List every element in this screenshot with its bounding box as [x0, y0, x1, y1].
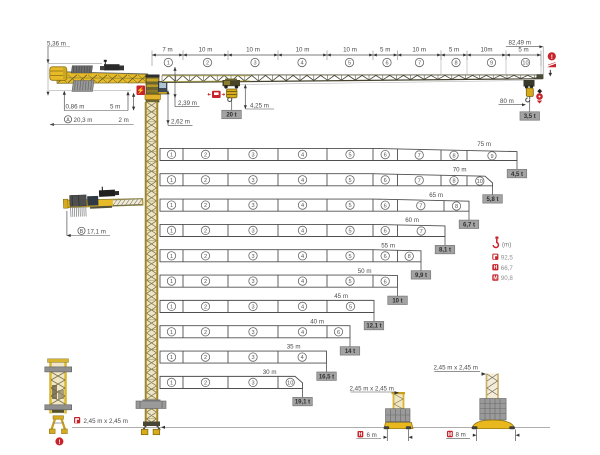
svg-text:3: 3 — [251, 229, 254, 235]
svg-text:3: 3 — [251, 254, 254, 260]
svg-text:5: 5 — [348, 203, 351, 209]
svg-text:6,7 t: 6,7 t — [463, 222, 475, 228]
svg-text:!: ! — [551, 54, 553, 61]
svg-text:6 m: 6 m — [367, 432, 377, 439]
svg-text:3: 3 — [251, 380, 254, 386]
svg-text:5: 5 — [348, 254, 351, 260]
svg-text:4: 4 — [301, 203, 304, 209]
svg-text:8,1 t: 8,1 t — [439, 248, 451, 254]
svg-text:10 m: 10 m — [343, 47, 357, 54]
svg-text:5: 5 — [348, 229, 351, 235]
svg-text:2: 2 — [204, 254, 207, 260]
svg-text:10: 10 — [522, 61, 528, 67]
svg-text:82,49 m: 82,49 m — [509, 39, 531, 46]
svg-text:1: 1 — [170, 380, 173, 386]
svg-text:3: 3 — [251, 153, 254, 159]
svg-text:2: 2 — [204, 380, 207, 386]
svg-text:3: 3 — [253, 61, 256, 67]
svg-text:2: 2 — [204, 355, 207, 361]
svg-text:1: 1 — [170, 279, 173, 285]
svg-text:5 m: 5 m — [518, 47, 528, 54]
svg-text:12,1 t: 12,1 t — [366, 324, 381, 330]
svg-text:2: 2 — [204, 279, 207, 285]
svg-text:10 m: 10 m — [296, 47, 310, 54]
svg-text:1: 1 — [170, 330, 173, 336]
svg-text:5 m: 5 m — [449, 47, 459, 54]
svg-text:8 m: 8 m — [456, 432, 466, 439]
svg-text:1: 1 — [170, 254, 173, 260]
svg-text:35 m: 35 m — [287, 344, 301, 351]
svg-text:5,8 t: 5,8 t — [486, 197, 498, 203]
svg-text:1: 1 — [170, 153, 173, 159]
svg-text:19,1 t: 19,1 t — [295, 400, 310, 406]
svg-text:2,62 m: 2,62 m — [171, 119, 190, 126]
svg-text:10: 10 — [477, 179, 483, 185]
svg-text:90,8: 90,8 — [501, 275, 514, 282]
svg-text:B: B — [80, 229, 84, 235]
svg-text:8: 8 — [454, 61, 457, 67]
svg-text:3: 3 — [251, 178, 254, 184]
svg-text:3: 3 — [251, 330, 254, 336]
svg-text:20,3 m: 20,3 m — [74, 117, 93, 124]
svg-text:3: 3 — [251, 279, 254, 285]
svg-text:4: 4 — [301, 330, 304, 336]
svg-text:9,9 t: 9,9 t — [415, 273, 427, 279]
svg-text:92,5: 92,5 — [501, 254, 514, 261]
svg-text:2: 2 — [204, 203, 207, 209]
svg-text:75 m: 75 m — [477, 141, 491, 148]
svg-text:!: ! — [58, 439, 60, 446]
svg-text:66,7: 66,7 — [501, 265, 514, 272]
svg-text:6: 6 — [384, 178, 387, 184]
svg-text:4: 4 — [301, 279, 304, 285]
svg-text:2,45 m x 2,45 m: 2,45 m x 2,45 m — [434, 365, 478, 372]
svg-text:5: 5 — [348, 279, 351, 285]
svg-text:1: 1 — [170, 304, 173, 310]
svg-text:16,5 t: 16,5 t — [319, 374, 334, 380]
svg-text:4: 4 — [301, 153, 304, 159]
svg-text:45 m: 45 m — [334, 293, 348, 300]
svg-text:4: 4 — [300, 61, 303, 67]
svg-text:17,1 m: 17,1 m — [87, 229, 106, 236]
svg-text:2: 2 — [204, 153, 207, 159]
svg-text:H: H — [359, 432, 363, 438]
svg-text:10 m: 10 m — [199, 47, 213, 54]
svg-text:6: 6 — [337, 330, 340, 336]
svg-text:7 m: 7 m — [162, 47, 172, 54]
svg-text:10m: 10m — [480, 47, 492, 54]
svg-text:4: 4 — [301, 355, 304, 361]
svg-text:6: 6 — [384, 279, 387, 285]
svg-text:1: 1 — [170, 229, 173, 235]
svg-text:4: 4 — [301, 229, 304, 235]
svg-text:2 m: 2 m — [119, 117, 129, 124]
svg-text:40 m: 40 m — [310, 318, 324, 325]
svg-text:2,45 m x 2,45 m: 2,45 m x 2,45 m — [350, 385, 394, 392]
svg-text:4,5 t: 4,5 t — [511, 172, 523, 178]
svg-text:5: 5 — [349, 304, 352, 310]
svg-text:2: 2 — [204, 178, 207, 184]
svg-text:3: 3 — [251, 203, 254, 209]
svg-text:9: 9 — [490, 154, 493, 160]
svg-text:7: 7 — [418, 178, 421, 184]
svg-text:3: 3 — [251, 304, 254, 310]
svg-text:20 t: 20 t — [226, 113, 236, 119]
svg-text:2,39 m: 2,39 m — [178, 100, 197, 107]
svg-text:1: 1 — [170, 355, 173, 361]
svg-text:4,25 m: 4,25 m — [250, 102, 269, 109]
svg-text:2: 2 — [206, 61, 209, 67]
svg-text:1: 1 — [167, 61, 170, 67]
svg-text:7: 7 — [420, 229, 423, 235]
svg-text:4: 4 — [301, 178, 304, 184]
svg-text:H: H — [494, 265, 498, 271]
svg-text:0,86 m: 0,86 m — [66, 104, 85, 111]
svg-text:4: 4 — [301, 254, 304, 260]
svg-text:4: 4 — [301, 304, 304, 310]
svg-text:10 t: 10 t — [392, 298, 402, 304]
svg-text:6: 6 — [385, 61, 388, 67]
svg-text:5 m: 5 m — [110, 104, 120, 111]
svg-text:8: 8 — [455, 204, 458, 210]
svg-text:7: 7 — [418, 153, 421, 159]
svg-text:6: 6 — [384, 203, 387, 209]
svg-text:80 m: 80 m — [500, 98, 514, 105]
svg-text:8: 8 — [452, 153, 455, 159]
svg-text:8: 8 — [408, 254, 411, 260]
svg-text:M: M — [493, 275, 497, 281]
svg-text:70 m: 70 m — [453, 166, 467, 173]
svg-text:6: 6 — [384, 153, 387, 159]
svg-text:10: 10 — [287, 380, 293, 386]
svg-text:2: 2 — [204, 330, 207, 336]
svg-text:(m): (m) — [502, 241, 511, 248]
svg-text:65 m: 65 m — [429, 192, 443, 199]
svg-text:30 m: 30 m — [263, 369, 277, 376]
svg-text:6: 6 — [384, 229, 387, 235]
svg-text:50 m: 50 m — [358, 268, 372, 275]
svg-text:55 m: 55 m — [381, 242, 395, 249]
svg-text:14 t: 14 t — [345, 349, 355, 355]
svg-text:3: 3 — [251, 355, 254, 361]
svg-text:5 m: 5 m — [380, 47, 390, 54]
svg-text:5,36 m: 5,36 m — [47, 41, 66, 48]
svg-text:1: 1 — [170, 203, 173, 209]
svg-text:2: 2 — [204, 229, 207, 235]
svg-text:6: 6 — [384, 254, 387, 260]
svg-text:8: 8 — [452, 179, 455, 185]
svg-text:10 m: 10 m — [246, 47, 260, 54]
svg-text:2,45 m x 2,45 m: 2,45 m x 2,45 m — [84, 418, 128, 425]
svg-text:3,5 t: 3,5 t — [524, 114, 536, 120]
svg-text:2: 2 — [204, 304, 207, 310]
svg-text:A: A — [66, 118, 70, 124]
svg-text:1: 1 — [170, 178, 173, 184]
svg-text:60 m: 60 m — [405, 217, 419, 224]
svg-text:M: M — [448, 432, 452, 438]
svg-text:⚡: ⚡ — [137, 87, 145, 95]
svg-text:7: 7 — [419, 204, 422, 210]
svg-text:10 m: 10 m — [412, 47, 426, 54]
svg-text:5: 5 — [348, 61, 351, 67]
svg-text:5: 5 — [348, 153, 351, 159]
svg-text:5: 5 — [348, 178, 351, 184]
svg-text:9: 9 — [490, 61, 493, 67]
svg-text:7: 7 — [418, 61, 421, 67]
